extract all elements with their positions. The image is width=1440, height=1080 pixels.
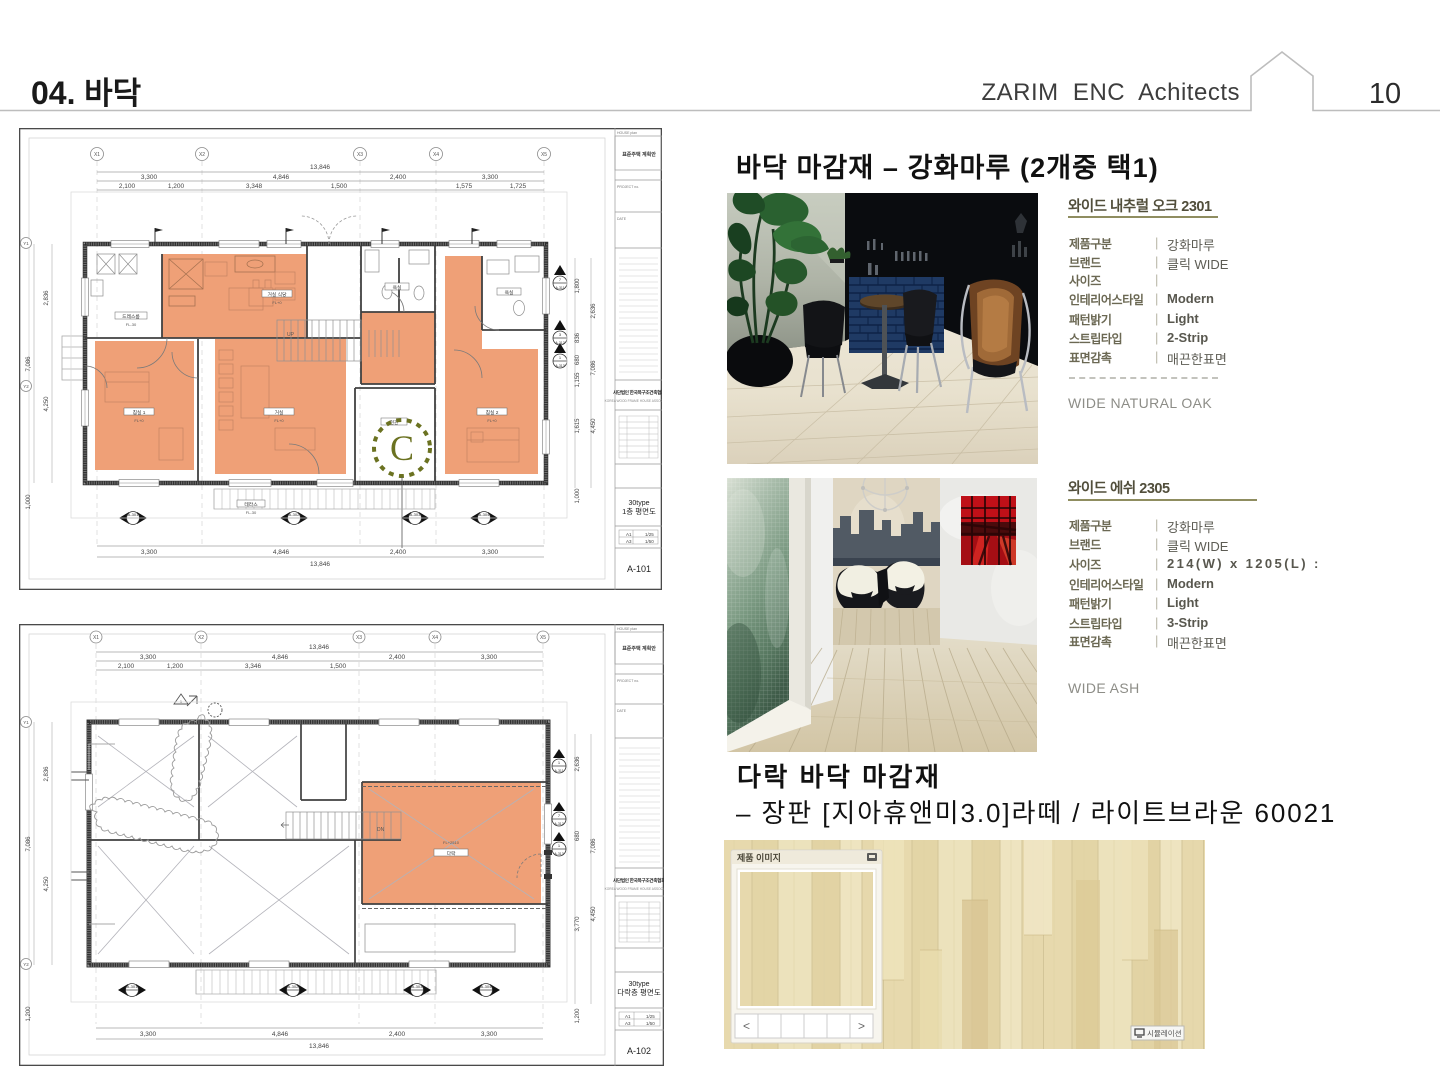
svg-text:3,300: 3,300 — [481, 1031, 498, 1038]
svg-text:3,300: 3,300 — [482, 174, 499, 181]
svg-text:DN: DN — [377, 827, 385, 833]
svg-text:836: 836 — [575, 332, 581, 343]
svg-text:UP: UP — [287, 332, 295, 338]
svg-text:A1: A1 — [626, 532, 632, 537]
svg-text:4,250: 4,250 — [44, 876, 50, 892]
svg-text:7,086: 7,086 — [591, 360, 597, 376]
svg-text:2,400: 2,400 — [390, 549, 407, 556]
svg-text:PROJECT no.: PROJECT no. — [617, 185, 639, 189]
svg-text:1,725: 1,725 — [510, 183, 527, 190]
svg-text:2,400: 2,400 — [389, 1031, 406, 1038]
svg-text:Y2: Y2 — [23, 962, 29, 967]
svg-text:3,300: 3,300 — [140, 654, 157, 661]
svg-text:시뮬레이션: 시뮬레이션 — [1147, 1028, 1182, 1038]
svg-text:FL+0: FL+0 — [487, 418, 497, 423]
svg-text:표준주택 계획안: 표준주택 계획안 — [622, 645, 656, 652]
svg-text:3,770: 3,770 — [575, 916, 581, 932]
svg-text:A-101: A-101 — [627, 564, 651, 574]
svg-text:2,836: 2,836 — [44, 290, 50, 306]
svg-text:1,575: 1,575 — [456, 183, 473, 190]
svg-text:3,300: 3,300 — [482, 549, 499, 556]
svg-text:거실 식당: 거실 식당 — [268, 291, 288, 298]
svg-text:A-102: A-102 — [627, 1046, 651, 1056]
svg-text:13,846: 13,846 — [309, 644, 329, 651]
svg-text:A-303: A-303 — [410, 512, 421, 517]
svg-text:30type: 30type — [628, 981, 649, 988]
svg-text:13,846: 13,846 — [310, 561, 330, 568]
svg-text:FL+0: FL+0 — [274, 418, 284, 423]
svg-text:표준주택 계획안: 표준주택 계획안 — [622, 151, 656, 158]
svg-text:FL-30: FL-30 — [126, 322, 137, 327]
svg-text:FL+2510: FL+2510 — [443, 840, 460, 845]
svg-text:<: < — [743, 1019, 750, 1033]
svg-text:3,300: 3,300 — [141, 174, 158, 181]
svg-text:사단법인 한국목구조건축협회: 사단법인 한국목구조건축협회 — [613, 389, 662, 396]
svg-text:7,086: 7,086 — [591, 838, 597, 854]
svg-text:DATE: DATE — [617, 217, 627, 221]
svg-text:HOUSE plan: HOUSE plan — [617, 131, 637, 135]
svg-text:1/25: 1/25 — [645, 532, 654, 537]
svg-text:4,450: 4,450 — [591, 906, 597, 922]
svg-text:드레스룸: 드레스룸 — [122, 313, 140, 320]
svg-text:FL+0: FL+0 — [272, 300, 282, 305]
svg-text:1/50: 1/50 — [645, 539, 654, 544]
svg-text:A1: A1 — [625, 1014, 631, 1019]
svg-text:A-311: A-311 — [555, 286, 564, 290]
svg-text:1,500: 1,500 — [331, 183, 348, 190]
svg-text:X3: X3 — [357, 152, 363, 158]
svg-text:A-313: A-313 — [555, 364, 564, 368]
svg-text:4,846: 4,846 — [272, 654, 289, 661]
svg-text:A-311: A-311 — [554, 769, 563, 773]
svg-text:A3: A3 — [626, 539, 632, 544]
svg-text:1,500: 1,500 — [330, 663, 347, 670]
svg-text:제품 이미지: 제품 이미지 — [737, 852, 781, 863]
svg-text:사단법인 한국목구조건축협회: 사단법인 한국목구조건축협회 — [613, 877, 664, 884]
svg-text:C: C — [390, 428, 414, 468]
svg-text:4,250: 4,250 — [44, 396, 50, 412]
svg-text:욕실: 욕실 — [393, 284, 402, 291]
svg-text:4,450: 4,450 — [591, 418, 597, 434]
svg-text:1,200: 1,200 — [168, 183, 185, 190]
svg-text:2,400: 2,400 — [390, 174, 407, 181]
svg-text:FL+0: FL+0 — [134, 418, 144, 423]
svg-text:X1: X1 — [93, 635, 99, 641]
svg-text:욕실: 욕실 — [505, 289, 514, 296]
svg-text:1층 평면도: 1층 평면도 — [622, 506, 656, 516]
svg-text:A-302: A-302 — [288, 984, 299, 989]
svg-text:A3: A3 — [625, 1021, 631, 1026]
svg-text:DATE: DATE — [617, 709, 627, 713]
svg-text:13,846: 13,846 — [309, 1043, 329, 1050]
svg-text:KOREA WOOD FRAME HOUSE ASSOCIA: KOREA WOOD FRAME HOUSE ASSOCIATION — [605, 887, 664, 891]
svg-text:3,300: 3,300 — [140, 1031, 157, 1038]
svg-text:X4: X4 — [433, 152, 439, 158]
svg-text:침실 2: 침실 2 — [486, 409, 499, 416]
svg-text:테라스: 테라스 — [244, 501, 258, 508]
svg-text:4,846: 4,846 — [273, 549, 290, 556]
svg-text:30type: 30type — [628, 500, 649, 507]
svg-text:X1: X1 — [94, 152, 100, 158]
svg-text:2,636: 2,636 — [575, 756, 581, 772]
svg-text:A-304: A-304 — [481, 984, 492, 989]
svg-text:HOUSE plan: HOUSE plan — [617, 627, 637, 631]
svg-text:A-312: A-312 — [554, 822, 563, 826]
svg-text:Y1: Y1 — [23, 720, 29, 725]
svg-text:거실: 거실 — [275, 409, 284, 416]
svg-text:A-301: A-301 — [127, 984, 138, 989]
svg-text:7,086: 7,086 — [26, 356, 32, 372]
svg-text:4,846: 4,846 — [272, 1031, 289, 1038]
svg-text:X5: X5 — [540, 635, 546, 641]
svg-text:A-303: A-303 — [412, 984, 423, 989]
svg-text:1,200: 1,200 — [167, 663, 184, 670]
svg-text:다락: 다락 — [447, 850, 456, 857]
svg-text:X5: X5 — [541, 152, 547, 158]
svg-text:1,200: 1,200 — [575, 1008, 581, 1024]
svg-text:A-302: A-302 — [289, 512, 300, 517]
svg-text:X3: X3 — [356, 635, 362, 641]
svg-text:PROJECT no.: PROJECT no. — [617, 679, 639, 683]
svg-text:1,000: 1,000 — [26, 494, 32, 510]
svg-text:Y2: Y2 — [23, 384, 29, 389]
svg-text:3,348: 3,348 — [246, 183, 263, 190]
svg-text:X4: X4 — [432, 635, 438, 641]
svg-text:2,100: 2,100 — [119, 183, 136, 190]
svg-text:A-301: A-301 — [128, 512, 139, 517]
svg-text:FL-30: FL-30 — [246, 510, 257, 515]
svg-text:>: > — [858, 1019, 865, 1033]
svg-text:침실 1: 침실 1 — [133, 409, 146, 416]
svg-text:1,200: 1,200 — [26, 1006, 32, 1022]
svg-text:3,346: 3,346 — [245, 663, 262, 670]
svg-text:2,400: 2,400 — [389, 654, 406, 661]
svg-text:X2: X2 — [199, 152, 205, 158]
svg-text:2,100: 2,100 — [118, 663, 135, 670]
svg-text:3,300: 3,300 — [481, 654, 498, 661]
svg-text:X2: X2 — [198, 635, 204, 641]
svg-text:2,636: 2,636 — [591, 303, 597, 319]
svg-text:1/25: 1/25 — [646, 1014, 655, 1019]
svg-text:680: 680 — [575, 830, 581, 841]
svg-text:3,300: 3,300 — [141, 549, 158, 556]
svg-text:A-313: A-313 — [554, 852, 563, 856]
svg-text:7,086: 7,086 — [26, 836, 32, 852]
svg-text:1,000: 1,000 — [575, 488, 581, 504]
svg-text:2,836: 2,836 — [44, 766, 50, 782]
svg-text:1,800: 1,800 — [575, 278, 581, 294]
svg-text:4,846: 4,846 — [273, 174, 290, 181]
svg-text:1,155: 1,155 — [575, 372, 581, 388]
svg-text:KOREA WOOD FRAME HOUSE ASSOCIA: KOREA WOOD FRAME HOUSE ASSOCIATION — [605, 399, 662, 403]
svg-text:A-304: A-304 — [479, 512, 490, 517]
svg-text:1,615: 1,615 — [575, 418, 581, 434]
svg-text:Y1: Y1 — [23, 241, 29, 246]
svg-text:13,846: 13,846 — [310, 164, 330, 171]
svg-text:680: 680 — [575, 354, 581, 365]
svg-text:1/50: 1/50 — [646, 1021, 655, 1026]
svg-text:다락층 평면도: 다락층 평면도 — [617, 987, 661, 997]
